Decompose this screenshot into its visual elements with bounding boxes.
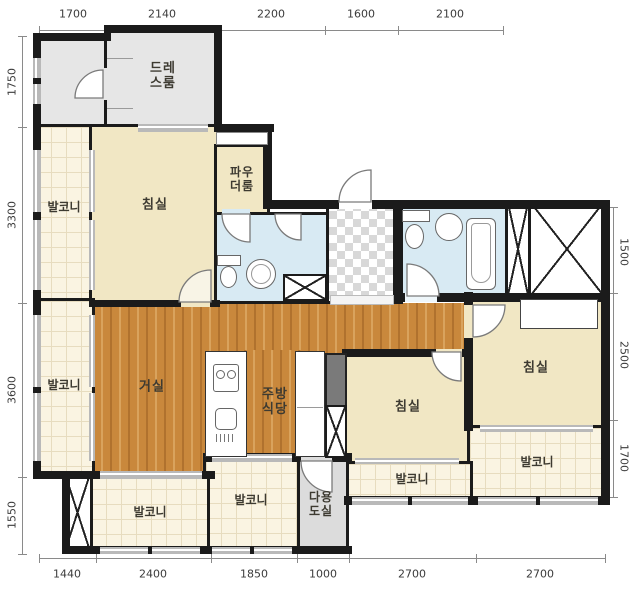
dim-right-2500: 2500 xyxy=(618,341,631,369)
window xyxy=(89,150,95,212)
main-entry-door xyxy=(339,170,371,202)
window xyxy=(33,393,41,461)
stove-burner xyxy=(227,370,236,379)
washbasin-inner xyxy=(251,264,271,284)
balcony-upper-left xyxy=(33,124,95,306)
entry-hall xyxy=(326,200,396,304)
window xyxy=(33,58,41,78)
entryroom-door-opening xyxy=(103,68,114,100)
dim-tick xyxy=(18,477,27,478)
window xyxy=(478,497,536,505)
dim-tick xyxy=(39,554,40,563)
dim-left-3600: 3600 xyxy=(6,376,19,404)
window xyxy=(33,84,41,104)
dim-left-1750: 1750 xyxy=(6,68,19,96)
wall xyxy=(263,200,610,209)
floor-plan: 드레스룸 침실 파우더룸 발코니 발코니 거실 주방식당 침실 침실 발코니 발… xyxy=(0,0,640,589)
dim-top-2140: 2140 xyxy=(148,8,176,21)
entry-door-opening xyxy=(339,200,372,209)
bedroom-1 xyxy=(89,124,220,306)
dim-tick xyxy=(398,26,399,35)
bedroom3-closet xyxy=(520,299,598,329)
kitchen-label: 주방식당 xyxy=(262,388,288,418)
stove-burner xyxy=(216,370,225,379)
dim-left-3300: 3300 xyxy=(6,201,19,229)
dim-tick xyxy=(349,554,350,563)
dim-right-1500: 1500 xyxy=(618,238,631,266)
bedroom3-label: 침실 xyxy=(523,362,549,377)
window xyxy=(33,220,41,290)
dress-room-label: 드레스룸 xyxy=(150,62,176,92)
wall xyxy=(33,33,111,41)
washbasin-round xyxy=(435,213,463,241)
dim-line-bottom xyxy=(39,558,605,559)
window xyxy=(100,471,202,479)
bedroom1-label: 침실 xyxy=(142,199,168,214)
dim-tick xyxy=(211,554,212,563)
window xyxy=(138,124,208,132)
window xyxy=(100,547,148,554)
dim-tick xyxy=(96,554,97,563)
cabinet-divider xyxy=(297,407,323,408)
dim-tick xyxy=(18,303,27,304)
dim-bottom-2700a: 2700 xyxy=(398,568,426,581)
window xyxy=(33,315,41,387)
balcony-right-label: 발코니 xyxy=(520,456,553,470)
bedroom1-door-opening xyxy=(181,300,210,307)
wall xyxy=(62,471,70,554)
bath1-shaft xyxy=(283,274,327,301)
powder-bath-door-opening xyxy=(222,209,250,216)
window xyxy=(212,547,250,554)
toilet-bowl xyxy=(220,266,237,288)
dim-tick xyxy=(609,207,618,208)
dress-shelf-line xyxy=(107,58,133,59)
dim-tick xyxy=(18,127,27,128)
window xyxy=(89,220,95,290)
dim-tick xyxy=(18,554,27,555)
dim-tick xyxy=(609,497,618,498)
dim-bottom-1440: 1440 xyxy=(53,568,81,581)
living-room-label: 거실 xyxy=(139,381,165,396)
window xyxy=(254,547,292,554)
kitchen-sink xyxy=(215,408,237,430)
balcony-c-label: 발코니 xyxy=(395,473,428,487)
dim-bottom-2400: 2400 xyxy=(139,568,167,581)
window xyxy=(89,393,95,461)
dim-tick xyxy=(476,554,477,563)
dim-tick xyxy=(325,26,326,35)
refrigerator xyxy=(325,353,347,407)
duct-shaft-large xyxy=(528,200,606,298)
utility-room-label: 다용도실 xyxy=(309,491,333,519)
wall xyxy=(214,25,222,132)
entry-hall-threshold xyxy=(330,295,394,305)
dim-top-1700: 1700 xyxy=(59,8,87,21)
kitchen-shaft xyxy=(325,405,347,458)
window xyxy=(480,425,593,432)
kitchen-cabinet xyxy=(295,351,325,457)
dim-tick xyxy=(609,420,618,421)
window xyxy=(412,497,468,505)
window xyxy=(89,315,95,387)
dim-tick xyxy=(609,293,618,294)
toilet-bowl xyxy=(405,224,424,249)
entry-storage-room xyxy=(33,36,110,133)
dim-tick xyxy=(503,26,504,35)
balcony-b-label: 발코니 xyxy=(234,494,267,508)
dim-bottom-2700b: 2700 xyxy=(526,568,554,581)
window xyxy=(152,547,200,554)
wall xyxy=(601,200,610,505)
window xyxy=(352,497,408,505)
bathtub-inner xyxy=(471,223,491,283)
dim-right-1700: 1700 xyxy=(618,444,631,472)
dim-bottom-1000: 1000 xyxy=(309,568,337,581)
window xyxy=(540,497,598,505)
balcony-upper-left-label: 발코니 xyxy=(47,201,80,215)
dim-top-1600: 1600 xyxy=(347,8,375,21)
toilet-tank xyxy=(217,255,241,266)
dim-bottom-1850: 1850 xyxy=(240,568,268,581)
dim-tick xyxy=(18,36,27,37)
powder-room-label: 파우더룸 xyxy=(230,166,254,194)
bath2-shelf xyxy=(402,210,430,222)
wall xyxy=(104,25,222,33)
bathroom2-door-opening xyxy=(405,293,437,302)
dress-shelf-line xyxy=(107,108,133,109)
dim-tick xyxy=(605,554,606,563)
kitchen-vent xyxy=(216,434,236,442)
bedroom2-door-opening xyxy=(436,349,462,357)
dim-left-1550: 1550 xyxy=(6,501,19,529)
dim-top-2200: 2200 xyxy=(257,8,285,21)
balcony-a-label: 발코니 xyxy=(133,506,166,520)
dim-top-2100: 2100 xyxy=(436,8,464,21)
window xyxy=(33,150,41,212)
dim-tick xyxy=(297,554,298,563)
balcony-lower-left-label: 발코니 xyxy=(47,379,80,393)
bedroom2-label: 침실 xyxy=(395,401,421,416)
bedroom3-door-opening xyxy=(464,305,473,338)
powder-shelf xyxy=(216,132,268,145)
window xyxy=(355,458,459,464)
dim-line-right xyxy=(613,207,614,497)
